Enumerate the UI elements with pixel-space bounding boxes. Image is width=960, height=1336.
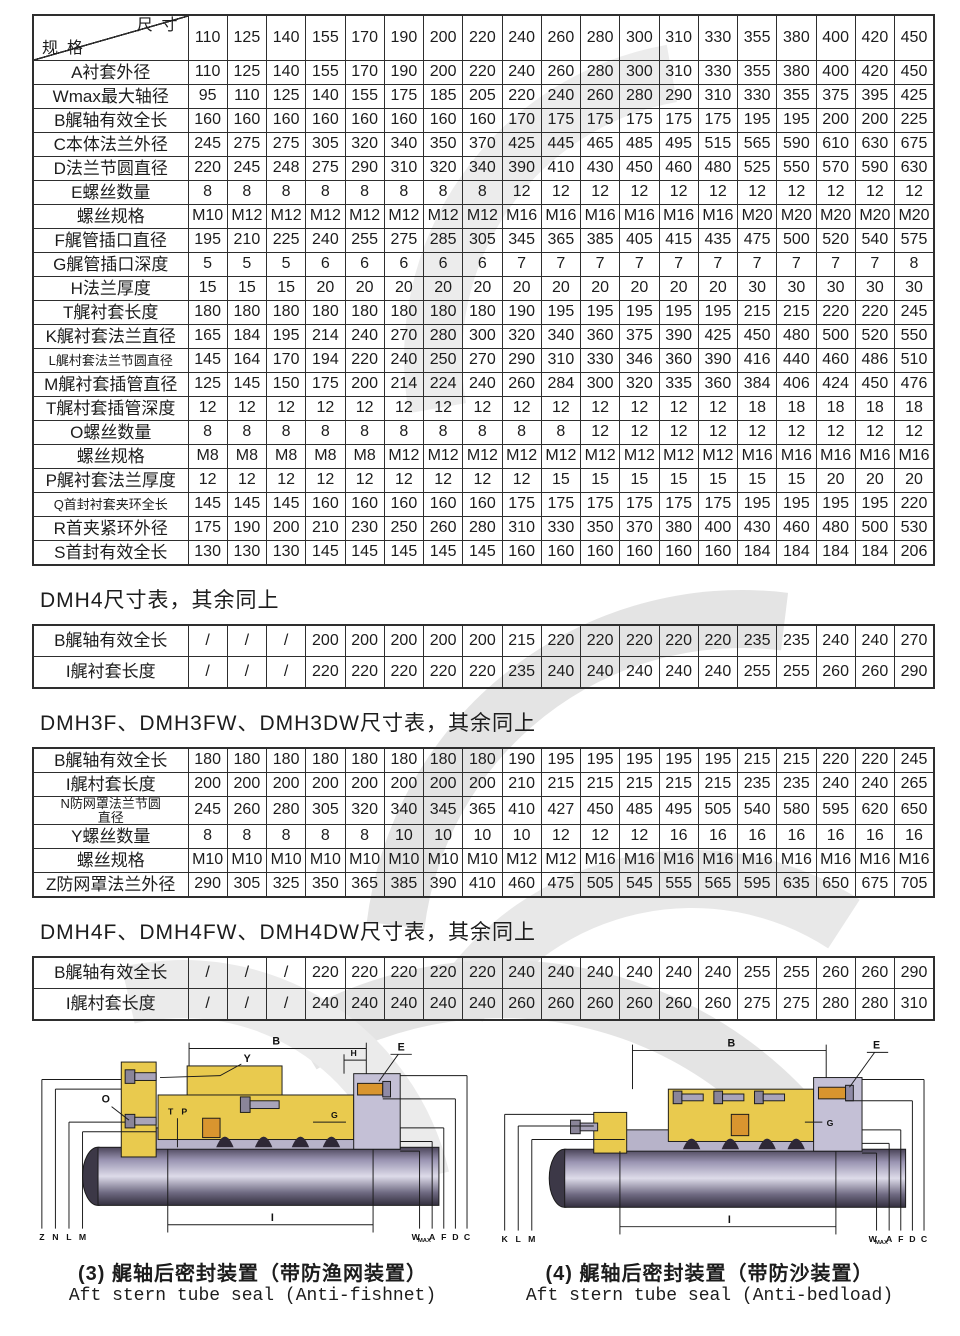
value-cell: 220 — [816, 301, 855, 325]
value-cell: 170 — [502, 109, 541, 133]
value-cell: 180 — [227, 301, 266, 325]
value-cell: 195 — [659, 748, 698, 773]
value-cell: 325 — [267, 873, 306, 898]
value-cell: 350 — [424, 133, 463, 157]
value-cell: 475 — [738, 229, 777, 253]
value-cell: M12 — [267, 205, 306, 229]
value-cell: 235 — [738, 773, 777, 797]
dim-label-l: L — [66, 1233, 72, 1243]
value-cell: 225 — [267, 229, 306, 253]
value-cell: M12 — [345, 205, 384, 229]
value-cell: 476 — [895, 373, 935, 397]
value-cell: 500 — [816, 325, 855, 349]
value-cell: 8 — [306, 181, 345, 205]
value-cell: 30 — [738, 277, 777, 301]
value-cell: 12 — [620, 421, 659, 445]
value-cell: M12 — [541, 849, 580, 873]
value-cell: 220 — [306, 657, 345, 689]
value-cell: M16 — [777, 445, 816, 469]
value-cell: 260 — [659, 989, 698, 1021]
header-row: 尺 寸规 格1101251401551701902002202402602803… — [33, 15, 934, 61]
flange-bolt — [358, 1084, 383, 1096]
value-cell: M12 — [581, 445, 620, 469]
value-cell: 460 — [659, 157, 698, 181]
value-cell: 240 — [698, 957, 737, 989]
value-cell: M12 — [424, 445, 463, 469]
row-label: 螺丝规格 — [33, 445, 188, 469]
value-cell: 160 — [306, 493, 345, 517]
value-cell: 8 — [463, 421, 502, 445]
value-cell: 15 — [188, 277, 227, 301]
value-cell: 12 — [620, 825, 659, 849]
size-column-header: 355 — [738, 15, 777, 61]
value-cell: 495 — [659, 133, 698, 157]
value-cell: 240 — [698, 657, 737, 689]
value-cell: M10 — [384, 849, 423, 873]
value-cell: 195 — [855, 493, 894, 517]
dim-label-o: O — [102, 1094, 110, 1106]
value-cell: / — [188, 657, 227, 689]
bolt-head — [125, 1115, 135, 1129]
spec-row: B艉轴有效全长///220220220220220240240240240240… — [33, 957, 934, 989]
value-cell: 184 — [777, 541, 816, 566]
value-cell: 450 — [620, 157, 659, 181]
value-cell: 95 — [188, 85, 227, 109]
value-cell: 160 — [541, 541, 580, 566]
value-cell: 140 — [306, 85, 345, 109]
value-cell: 12 — [659, 397, 698, 421]
row-label: H法兰厚度 — [33, 277, 188, 301]
value-cell: 190 — [502, 748, 541, 773]
value-cell: 650 — [895, 797, 935, 825]
spec-row: 螺丝规格M10M10M10M10M10M10M10M10M12M12M16M16… — [33, 849, 934, 873]
spec-row: Z防网罩法兰外径29030532535036538539041046047550… — [33, 873, 934, 898]
value-cell: M20 — [855, 205, 894, 229]
value-cell: 460 — [777, 517, 816, 541]
value-cell: 8 — [267, 181, 306, 205]
value-cell: 215 — [777, 301, 816, 325]
value-cell: 235 — [777, 773, 816, 797]
value-cell: 220 — [502, 85, 541, 109]
value-cell: 280 — [424, 325, 463, 349]
value-cell: 206 — [895, 541, 935, 566]
value-cell: 255 — [345, 229, 384, 253]
value-cell: 330 — [698, 61, 737, 85]
value-cell: 215 — [502, 625, 541, 657]
value-cell: 220 — [463, 61, 502, 85]
row-label: O螺丝数量 — [33, 421, 188, 445]
size-column-header: 260 — [541, 15, 580, 61]
value-cell: M10 — [424, 849, 463, 873]
value-cell: 280 — [581, 61, 620, 85]
row-label: D法兰节圆直径 — [33, 157, 188, 181]
value-cell: 515 — [698, 133, 737, 157]
value-cell: M16 — [777, 849, 816, 873]
value-cell: 175 — [384, 85, 423, 109]
bolt-shaft — [135, 1073, 156, 1081]
value-cell: 260 — [581, 85, 620, 109]
value-cell: 6 — [306, 253, 345, 277]
value-cell: 570 — [816, 157, 855, 181]
value-cell: / — [227, 657, 266, 689]
value-cell: 425 — [502, 133, 541, 157]
dim-label-d: D — [452, 1233, 458, 1243]
value-cell: 305 — [463, 229, 502, 253]
value-cell: 390 — [659, 325, 698, 349]
value-cell: 16 — [816, 825, 855, 849]
row-label: T艉村套插管深度 — [33, 397, 188, 421]
value-cell: 160 — [424, 493, 463, 517]
value-cell: 155 — [306, 61, 345, 85]
dim-label-e: E — [398, 1042, 405, 1054]
value-cell: 20 — [306, 277, 345, 301]
figure-anti-fishnet: B H E Y O T P G — [32, 1033, 473, 1306]
value-cell: 170 — [345, 61, 384, 85]
bolt-shaft — [250, 1101, 279, 1109]
bolt-shaft — [763, 1094, 784, 1101]
value-cell: / — [227, 989, 266, 1021]
size-column-header: 140 — [267, 15, 306, 61]
value-cell: 12 — [659, 181, 698, 205]
value-cell: 160 — [581, 541, 620, 566]
spec-row: P艉衬套法兰厚度12121212121212121215151515151515… — [33, 469, 934, 493]
value-cell: 350 — [306, 873, 345, 898]
value-cell: 240 — [581, 657, 620, 689]
value-cell: 290 — [659, 85, 698, 109]
dim-label-m: M — [79, 1233, 86, 1243]
value-cell: 12 — [816, 181, 855, 205]
value-cell: 450 — [855, 373, 894, 397]
value-cell: 200 — [463, 773, 502, 797]
row-label: L艉村套法兰节圆直径 — [33, 349, 188, 373]
value-cell: 10 — [424, 825, 463, 849]
value-cell: 195 — [620, 301, 659, 325]
value-cell: 220 — [188, 157, 227, 181]
value-cell: M8 — [345, 445, 384, 469]
value-cell: 245 — [227, 157, 266, 181]
dim-label-b: B — [727, 1038, 735, 1050]
value-cell: 250 — [424, 349, 463, 373]
value-cell: 8 — [384, 181, 423, 205]
value-cell: 12 — [541, 825, 580, 849]
value-cell: 225 — [895, 109, 935, 133]
value-cell: / — [267, 989, 306, 1021]
value-cell: 130 — [267, 541, 306, 566]
value-cell: 550 — [895, 325, 935, 349]
value-cell: 220 — [698, 625, 737, 657]
value-cell: / — [227, 957, 266, 989]
seal-housing-upper — [187, 1066, 282, 1095]
value-cell: 345 — [502, 229, 541, 253]
value-cell: 7 — [855, 253, 894, 277]
value-cell: 590 — [855, 157, 894, 181]
value-cell: 215 — [541, 773, 580, 797]
value-cell: 410 — [541, 157, 580, 181]
value-cell: 380 — [777, 61, 816, 85]
value-cell: / — [188, 989, 227, 1021]
value-cell: 175 — [541, 109, 580, 133]
value-cell: 18 — [895, 397, 935, 421]
value-cell: 145 — [306, 541, 345, 566]
value-cell: M12 — [698, 445, 737, 469]
value-cell: 12 — [541, 181, 580, 205]
spec-row: B艉轴有效全长///200200200200200215220220220220… — [33, 625, 934, 657]
spec-row: R首夹紧环外径175190200210230250260280310330350… — [33, 517, 934, 541]
value-cell: / — [267, 625, 306, 657]
size-column-header: 125 — [227, 15, 266, 61]
value-cell: 520 — [816, 229, 855, 253]
value-cell: 406 — [777, 373, 816, 397]
row-label: B艉轴有效全长 — [33, 957, 188, 989]
bolt-shaft — [580, 1123, 597, 1131]
row-label: I艉村套长度 — [33, 989, 188, 1021]
row-label: B艉轴有效全长 — [33, 625, 188, 657]
dim-label-g: G — [331, 1111, 338, 1121]
value-cell: 125 — [267, 85, 306, 109]
value-cell: 370 — [620, 517, 659, 541]
value-cell: 145 — [267, 493, 306, 517]
dim-label-y: Y — [244, 1053, 251, 1065]
value-cell: 195 — [541, 301, 580, 325]
value-cell: 220 — [463, 657, 502, 689]
value-cell: M10 — [267, 849, 306, 873]
dim-label-b: B — [272, 1036, 280, 1048]
value-cell: 460 — [816, 349, 855, 373]
value-cell: 330 — [738, 85, 777, 109]
value-cell: 275 — [267, 133, 306, 157]
value-cell: 486 — [855, 349, 894, 373]
corner-spec-label: 规 格 — [42, 41, 83, 58]
value-cell: 8 — [345, 181, 384, 205]
value-cell: M12 — [384, 205, 423, 229]
value-cell: 195 — [188, 229, 227, 253]
value-cell: 15 — [777, 469, 816, 493]
value-cell: M16 — [855, 445, 894, 469]
row-label: K艉衬套法兰直径 — [33, 325, 188, 349]
value-cell: 555 — [659, 873, 698, 898]
value-cell: 346 — [620, 349, 659, 373]
row-label: I艉村套长度 — [33, 773, 188, 797]
value-cell: 180 — [424, 301, 463, 325]
value-cell: M16 — [816, 849, 855, 873]
value-cell: 20 — [698, 277, 737, 301]
value-cell: 245 — [188, 797, 227, 825]
value-cell: 195 — [581, 301, 620, 325]
value-cell: 265 — [895, 773, 935, 797]
value-cell: 485 — [620, 797, 659, 825]
size-column-header: 110 — [188, 15, 227, 61]
value-cell: 220 — [345, 957, 384, 989]
value-cell: 130 — [188, 541, 227, 566]
value-cell: 12 — [463, 469, 502, 493]
value-cell: 220 — [306, 957, 345, 989]
value-cell: 305 — [306, 797, 345, 825]
value-cell: 8 — [227, 825, 266, 849]
value-cell: 184 — [816, 541, 855, 566]
value-cell: 270 — [384, 325, 423, 349]
value-cell: 145 — [227, 493, 266, 517]
value-cell: 12 — [738, 421, 777, 445]
section-title-dmh3f: DMH3F、DMH3FW、DMH3DW尺寸表，其余同上 — [40, 707, 935, 737]
dim-label-a: A — [429, 1233, 436, 1243]
value-cell: 18 — [816, 397, 855, 421]
value-cell: 160 — [267, 109, 306, 133]
value-cell: 220 — [581, 625, 620, 657]
value-cell: 250 — [384, 517, 423, 541]
value-cell: 220 — [345, 349, 384, 373]
value-cell: 215 — [620, 773, 659, 797]
value-cell: 215 — [581, 773, 620, 797]
value-cell: 180 — [345, 748, 384, 773]
value-cell: 190 — [502, 301, 541, 325]
value-cell: 220 — [345, 657, 384, 689]
row-label: E螺丝数量 — [33, 181, 188, 205]
value-cell: 175 — [306, 373, 345, 397]
value-cell: 200 — [816, 109, 855, 133]
value-cell: M20 — [895, 205, 935, 229]
value-cell: 6 — [424, 253, 463, 277]
value-cell: 15 — [698, 469, 737, 493]
dmh4-dimension-table: B艉轴有效全长///200200200200200215220220220220… — [32, 624, 935, 689]
value-cell: 220 — [424, 657, 463, 689]
value-cell: 184 — [738, 541, 777, 566]
value-cell: 205 — [463, 85, 502, 109]
value-cell: 180 — [384, 748, 423, 773]
value-cell: 214 — [384, 373, 423, 397]
value-cell: 305 — [227, 873, 266, 898]
value-cell: 12 — [855, 181, 894, 205]
value-cell: M10 — [463, 849, 502, 873]
dim-label-a: A — [886, 1234, 893, 1244]
value-cell: 284 — [541, 373, 580, 397]
value-cell: 345 — [424, 797, 463, 825]
propeller-shaft — [565, 1149, 906, 1207]
value-cell: 12 — [267, 397, 306, 421]
value-cell: 175 — [581, 493, 620, 517]
spec-row: H法兰厚度15151520202020202020202020203030303… — [33, 277, 934, 301]
row-label: R首夹紧环外径 — [33, 517, 188, 541]
value-cell: 240 — [306, 989, 345, 1021]
value-cell: 12 — [541, 397, 580, 421]
value-cell: 365 — [345, 873, 384, 898]
value-cell: 405 — [620, 229, 659, 253]
value-cell: 385 — [581, 229, 620, 253]
value-cell: 10 — [502, 825, 541, 849]
value-cell: 160 — [698, 541, 737, 566]
value-cell: 7 — [541, 253, 580, 277]
value-cell: 20 — [855, 469, 894, 493]
value-cell: 18 — [777, 397, 816, 421]
value-cell: M16 — [502, 205, 541, 229]
value-cell: 375 — [816, 85, 855, 109]
value-cell: 235 — [738, 625, 777, 657]
caption-anti-fishnet: (3) 艉轴后密封装置（带防渔网装置） Aft stern tube seal … — [32, 1257, 473, 1306]
row-label: 螺丝规格 — [33, 849, 188, 873]
value-cell: 12 — [384, 397, 423, 421]
value-cell: M12 — [384, 445, 423, 469]
size-column-header: 310 — [659, 15, 698, 61]
row-label: T艉衬套长度 — [33, 301, 188, 325]
spec-row: D法兰节圆直径220245248275290310320340390410430… — [33, 157, 934, 181]
value-cell: 420 — [855, 61, 894, 85]
value-cell: 15 — [659, 469, 698, 493]
size-column-header: 450 — [895, 15, 935, 61]
value-cell: M8 — [306, 445, 345, 469]
value-cell: 415 — [659, 229, 698, 253]
flange-bolt — [818, 1088, 845, 1100]
value-cell: 425 — [698, 325, 737, 349]
value-cell: 160 — [227, 109, 266, 133]
value-cell: M16 — [738, 445, 777, 469]
value-cell: 180 — [424, 748, 463, 773]
spec-row: 螺丝规格M10M12M12M12M12M12M12M12M16M16M16M16… — [33, 205, 934, 229]
value-cell: 20 — [345, 277, 384, 301]
value-cell: 200 — [424, 773, 463, 797]
value-cell: 12 — [620, 181, 659, 205]
value-cell: 160 — [306, 109, 345, 133]
value-cell: 235 — [502, 657, 541, 689]
value-cell: 440 — [777, 349, 816, 373]
value-cell: M12 — [502, 445, 541, 469]
value-cell: 8 — [345, 825, 384, 849]
size-column-header: 200 — [424, 15, 463, 61]
value-cell: 610 — [816, 133, 855, 157]
value-cell: 180 — [188, 301, 227, 325]
value-cell: 7 — [620, 253, 659, 277]
value-cell: 200 — [306, 625, 345, 657]
value-cell: 290 — [502, 349, 541, 373]
value-cell: 200 — [227, 773, 266, 797]
value-cell: 495 — [659, 797, 698, 825]
value-cell: 255 — [777, 957, 816, 989]
value-cell: 530 — [895, 517, 935, 541]
page-content: 尺 寸规 格1101251401551701902002202402602803… — [0, 0, 960, 1306]
value-cell: 110 — [227, 85, 266, 109]
value-cell: 12 — [620, 397, 659, 421]
value-cell: 480 — [816, 517, 855, 541]
value-cell: 175 — [581, 109, 620, 133]
bolt-shaft — [723, 1094, 744, 1101]
value-cell: 290 — [188, 873, 227, 898]
value-cell: 16 — [659, 825, 698, 849]
value-cell: 220 — [424, 957, 463, 989]
value-cell: 365 — [541, 229, 580, 253]
value-cell: M16 — [581, 205, 620, 229]
value-cell: 580 — [777, 797, 816, 825]
value-cell: 8 — [188, 825, 227, 849]
value-cell: 6 — [345, 253, 384, 277]
value-cell: M16 — [698, 849, 737, 873]
value-cell: 340 — [463, 157, 502, 181]
value-cell: 160 — [463, 109, 502, 133]
value-cell: 545 — [620, 873, 659, 898]
main-dimension-table: 尺 寸规 格1101251401551701902002202402602803… — [32, 14, 935, 566]
bolt-shaft — [682, 1094, 703, 1101]
value-cell: 12 — [738, 181, 777, 205]
value-cell: M8 — [267, 445, 306, 469]
value-cell: 200 — [463, 625, 502, 657]
row-label: C本体法兰外径 — [33, 133, 188, 157]
value-cell: M12 — [424, 205, 463, 229]
value-cell: 175 — [659, 109, 698, 133]
value-cell: 184 — [227, 325, 266, 349]
value-cell: 12 — [306, 397, 345, 421]
dmh4f-dimension-table: B艉轴有效全长///220220220220220240240240240240… — [32, 956, 935, 1021]
value-cell: 20 — [659, 277, 698, 301]
value-cell: / — [267, 957, 306, 989]
row-label: 螺丝规格 — [33, 205, 188, 229]
value-cell: 220 — [855, 301, 894, 325]
